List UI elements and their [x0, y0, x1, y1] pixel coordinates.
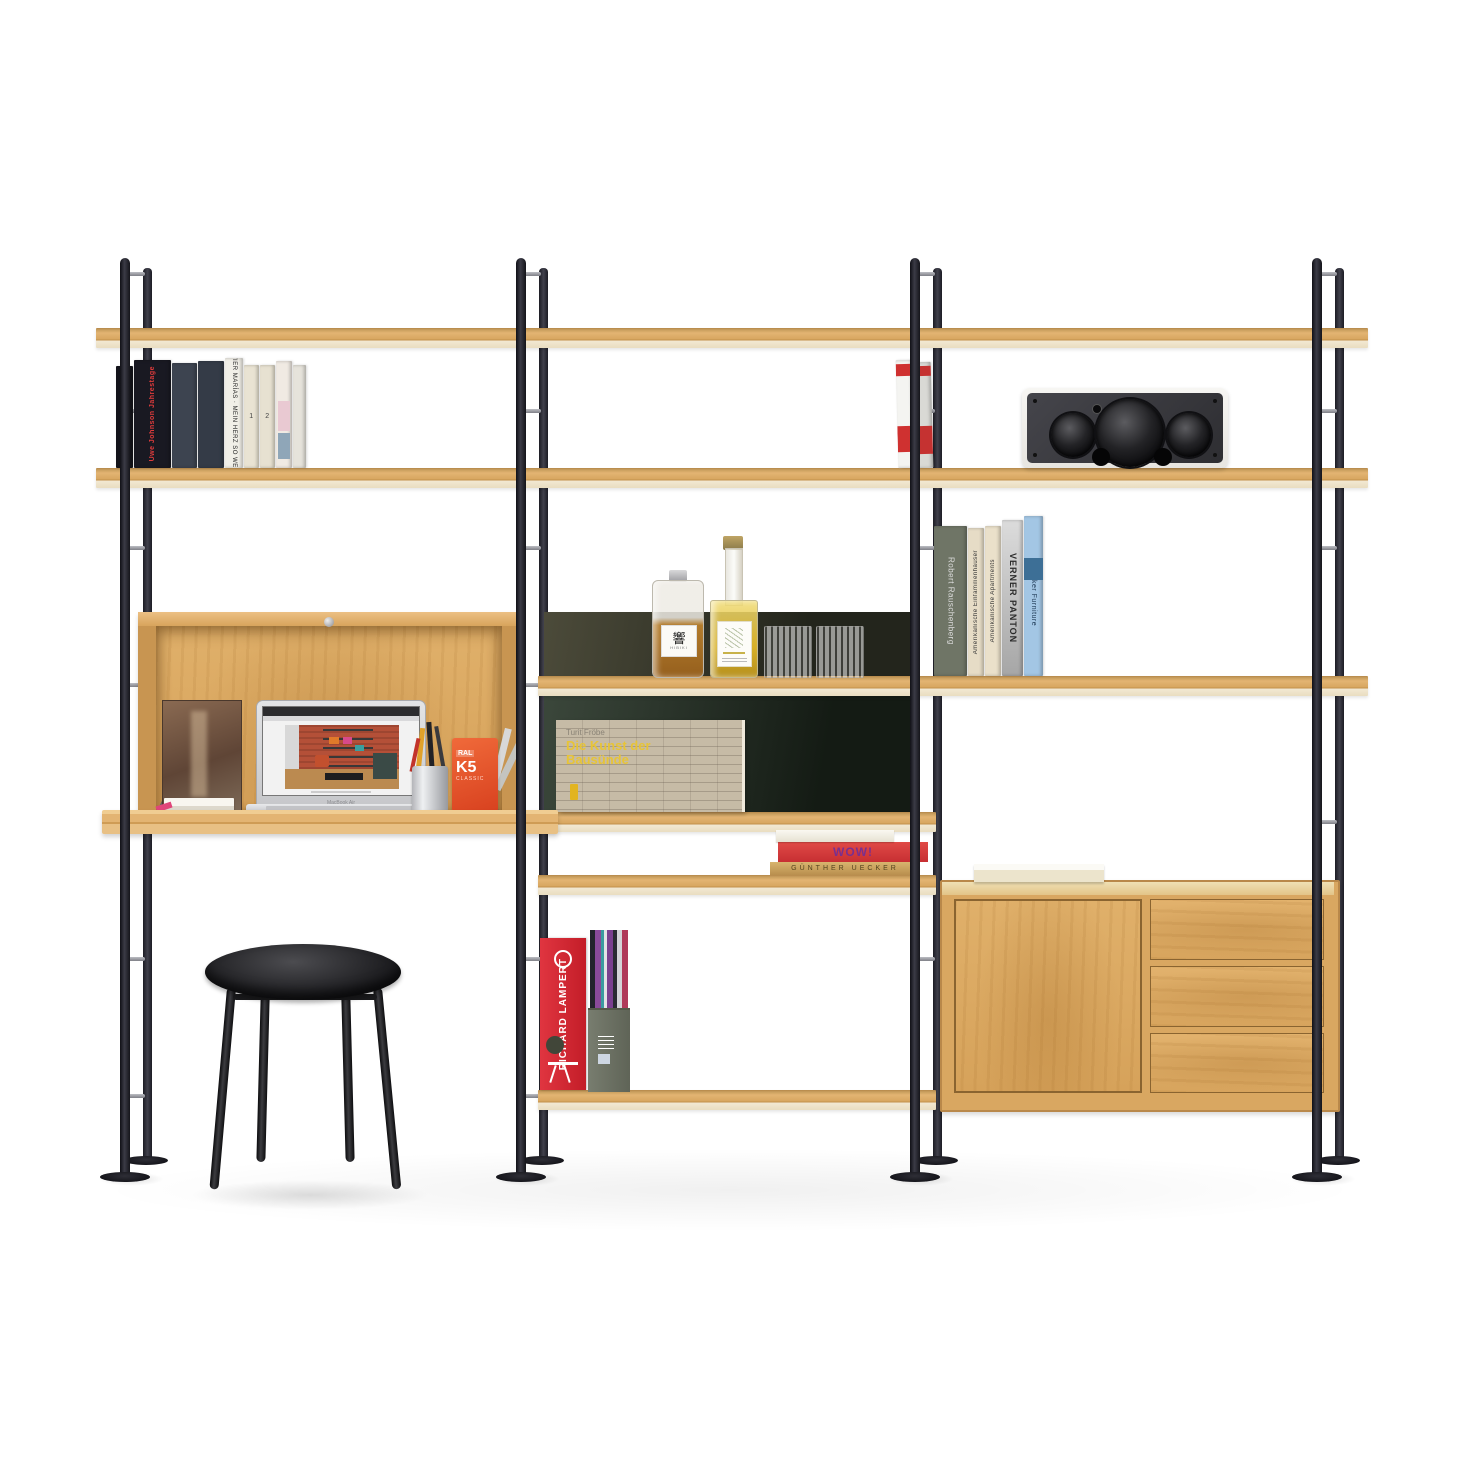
table-top-glyph	[546, 1036, 564, 1054]
stool	[205, 944, 405, 1194]
desk-artwork	[162, 700, 242, 814]
book-title: VERNER PANTON	[1008, 553, 1017, 643]
book-title: 1	[249, 413, 253, 420]
whisky-glyph: 響	[672, 632, 685, 645]
browser-toolbar	[263, 707, 419, 716]
book-title: Amerikanische Apartments	[990, 559, 996, 642]
hydrant-detail	[570, 784, 578, 800]
art-book-author: Turit Fröbe	[566, 728, 651, 737]
sofa	[373, 753, 397, 779]
ral-fan-deck: RAL K5 CLASSIC	[452, 738, 498, 812]
table-leg-glyph	[549, 1065, 556, 1083]
cabinet-door	[954, 899, 1142, 1093]
book-on-cabinet	[974, 864, 1104, 882]
magazines	[590, 930, 628, 1014]
stool-seat	[205, 944, 401, 1000]
desk-flap	[102, 810, 558, 834]
laptop-photo	[285, 725, 399, 789]
art-book-title-1: Die Kunst der	[566, 739, 651, 753]
art-book-cover: Turit Fröbe Die Kunst der Bausünde	[556, 720, 742, 812]
speaker-port	[1092, 448, 1110, 466]
book-title: 2	[265, 413, 269, 420]
coffee-table	[325, 773, 363, 780]
stack-book-top	[776, 830, 894, 842]
file-front	[588, 1008, 630, 1092]
speaker-screw	[1213, 399, 1217, 403]
book-title: JAVIER MARÍAS · MEIN HERZ SO WEISS	[231, 358, 237, 468]
shelving-unit-photo: Uwe Johnson Jahrestage JAVIER MARÍAS · M…	[0, 0, 1458, 1458]
cabinet	[940, 880, 1340, 1112]
book-spine-shaker: Shaker Furniture	[1024, 516, 1043, 676]
desk-lock	[324, 617, 334, 627]
shelf-top	[96, 328, 1368, 348]
cabinet-drawer-2	[1150, 966, 1324, 1027]
book-spine-apartments: Amerikanische Apartments	[985, 526, 1001, 676]
tumbler-glass	[764, 626, 812, 678]
book-spine	[172, 363, 197, 468]
tumbler-glass	[816, 626, 864, 678]
laptop: MacBook Air	[256, 700, 426, 808]
stack-book-wow: WOW!	[778, 842, 928, 862]
stool-leg	[341, 984, 355, 1162]
file-logo	[598, 1054, 610, 1064]
stool-leg	[209, 988, 236, 1190]
ral-line3: CLASSIC	[456, 776, 494, 782]
cabinet-drawer-1	[1150, 899, 1324, 960]
book-spine-vol2: 2	[260, 365, 275, 468]
book-spine	[276, 361, 292, 468]
book-spine-marias: JAVIER MARÍAS · MEIN HERZ SO WEISS	[225, 358, 243, 468]
armchair	[315, 755, 329, 767]
shelf-bottom	[538, 1090, 936, 1110]
ral-line1: RAL	[456, 750, 474, 757]
shelf-middle	[538, 676, 1368, 696]
book-spine	[198, 361, 224, 468]
liqueur-bottle	[710, 600, 758, 678]
stool-leg	[373, 988, 401, 1190]
book-spine-panton: VERNER PANTON	[1002, 520, 1023, 676]
pen-cup	[412, 766, 448, 812]
stack-book-uecker: GÜNTHER UECKER	[770, 862, 920, 875]
whisky-label: HIBIKI	[670, 645, 688, 650]
speaker-cone-right	[1167, 413, 1211, 457]
book-spine-vol1: 1	[244, 365, 259, 468]
speaker-port	[1154, 448, 1172, 466]
book-spine-rauschenberg: Robert Rauschenberg	[934, 526, 967, 676]
speaker-tweeter	[1093, 405, 1101, 413]
cabinet-drawer-3	[1150, 1033, 1324, 1093]
speaker-screw	[1213, 453, 1217, 457]
book-spine-jahrestage: Uwe Johnson Jahrestage	[134, 360, 171, 468]
book-title: Amerikanische Einfamilienhäuser	[973, 550, 979, 654]
art-book-title-2: Bausünde	[566, 753, 651, 767]
speaker-grille	[1027, 393, 1223, 463]
bottle-neck	[725, 548, 743, 606]
speaker	[1022, 388, 1228, 468]
shelf-stack	[538, 875, 936, 895]
book-spine	[293, 365, 306, 468]
speaker-cone-left	[1051, 413, 1095, 457]
stack-book-title: WOW!	[833, 845, 873, 859]
cabinet-top	[942, 882, 1334, 895]
stack-book-title: GÜNTHER UECKER	[791, 865, 899, 872]
whisky-bottle: 響 HIBIKI	[652, 580, 704, 678]
binder-richard-lampert: RICHARD LAMPERT	[540, 938, 586, 1090]
book-title: Robert Rauschenberg	[947, 557, 955, 645]
binder-label: RICHARD LAMPERT	[558, 958, 569, 1070]
ral-line2: K5	[456, 760, 494, 776]
speaker-screw	[1033, 399, 1037, 403]
stool-leg	[256, 984, 270, 1162]
speaker-screw	[1033, 453, 1037, 457]
shelf-desk-level	[538, 812, 936, 832]
book-title: Uwe Johnson Jahrestage	[149, 366, 156, 461]
book-spine-einfamilienhaeuser: Amerikanische Einfamilienhäuser	[968, 528, 984, 676]
shelf-upper	[96, 468, 1368, 488]
